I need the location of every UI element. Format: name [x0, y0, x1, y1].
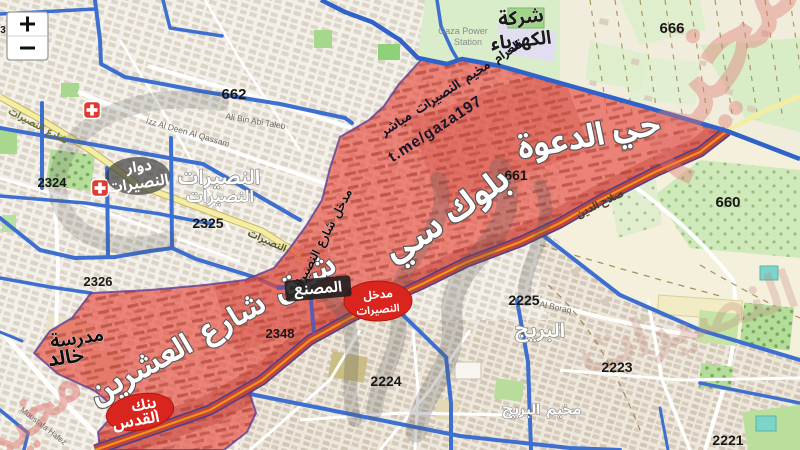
- svg-text:3: 3: [0, 25, 6, 36]
- svg-text:660: 660: [715, 194, 740, 211]
- svg-text:2325: 2325: [192, 215, 223, 231]
- svg-text:662: 662: [221, 86, 246, 103]
- svg-text:2225: 2225: [508, 292, 539, 308]
- svg-text:2326: 2326: [84, 274, 113, 289]
- svg-text:2223: 2223: [601, 359, 632, 375]
- svg-text:2348: 2348: [266, 326, 295, 341]
- svg-text:2221: 2221: [712, 432, 743, 448]
- svg-text:666: 666: [659, 20, 684, 37]
- svg-text:2324: 2324: [38, 175, 68, 190]
- svg-text:Station: Station: [454, 37, 482, 47]
- svg-text:2224: 2224: [370, 373, 401, 389]
- svg-text:Gaza Power: Gaza Power: [438, 26, 488, 36]
